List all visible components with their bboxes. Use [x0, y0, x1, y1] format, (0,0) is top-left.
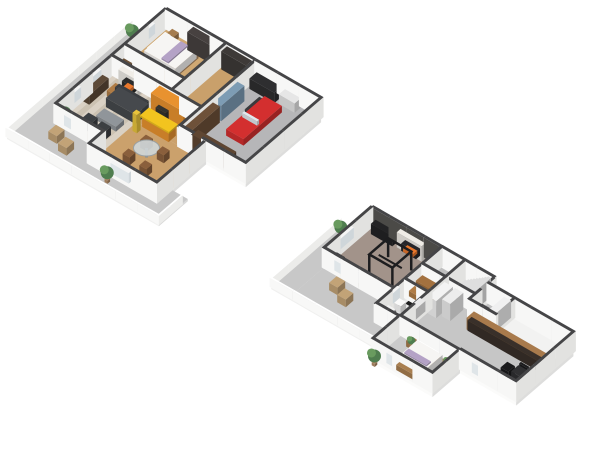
- wall: [243, 163, 246, 185]
- deck-railing: [157, 215, 159, 225]
- dining-table: [133, 140, 159, 156]
- upper-floor-plan: [5, 7, 323, 226]
- potted-plant: [333, 220, 342, 229]
- floor-lamp: [133, 113, 137, 134]
- floorplan-render-canvas: [0, 0, 600, 450]
- lower-floor-plan: [270, 205, 576, 406]
- wall: [430, 372, 433, 394]
- window: [129, 171, 131, 184]
- wall: [154, 182, 157, 204]
- nightstand-plant: [407, 336, 412, 341]
- potted-plant: [367, 348, 376, 357]
- wall: [516, 381, 518, 403]
- isometric-floorplans: [0, 0, 600, 450]
- potted-plant: [125, 23, 134, 32]
- potted-plant: [100, 165, 109, 174]
